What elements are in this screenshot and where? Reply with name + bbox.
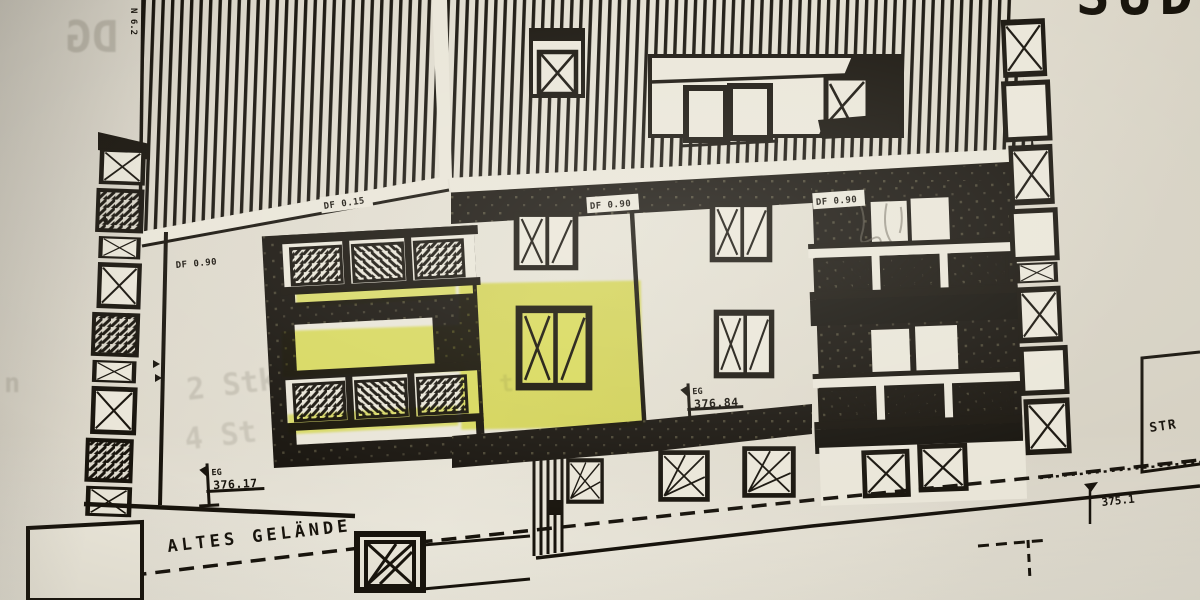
dormer-small: [531, 30, 583, 96]
scanned-elevation-drawing: DG 2 Stk 4 St trennw n N 6.2: [0, 0, 1200, 600]
window-top-center: [712, 204, 769, 259]
ghost-text-edge: n: [4, 368, 20, 399]
window-ground-right-2: [920, 445, 966, 490]
eg-mid-text: EG: [692, 387, 703, 398]
roof-pitch-label: N 6.2: [128, 8, 138, 35]
corner-step-wall: [28, 522, 142, 600]
highlight-window-area: [459, 280, 644, 429]
window-top-left: [517, 214, 576, 267]
right-facade: [806, 179, 1027, 506]
dormer-large: [650, 56, 902, 146]
eg-left-value: 376.17: [213, 476, 258, 492]
sued-label: SÜD: [1076, 0, 1200, 28]
right-balcony-railing-1: [808, 237, 1018, 300]
eg-mid-value: 376.84: [694, 395, 739, 411]
window-mid-center: [716, 313, 771, 376]
eg-left-text: EG: [211, 468, 222, 479]
highlight-band: [281, 325, 462, 377]
right-balcony-railing-2: [813, 367, 1023, 430]
drawing-canvas: DG 2 Stk 4 St trennw n N 6.2: [0, 0, 1200, 600]
ghost-text-dg: DG: [66, 12, 119, 63]
